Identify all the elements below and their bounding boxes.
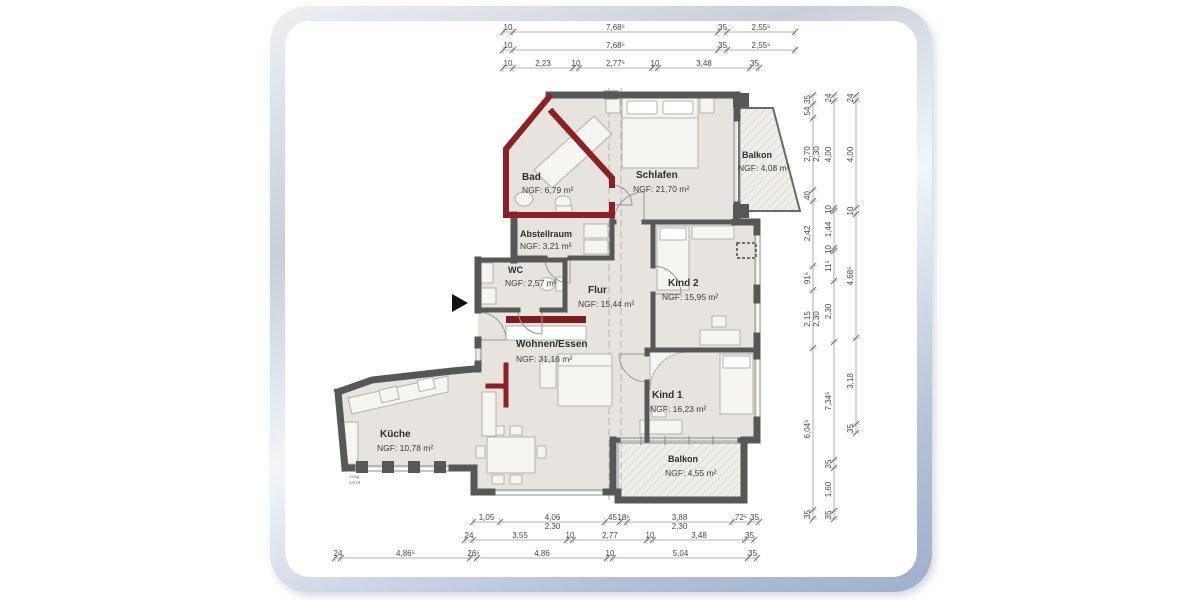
svg-text:2,15: 2,15 [803, 311, 812, 327]
svg-text:2,30: 2,30 [672, 522, 688, 531]
svg-text:WC: WC [508, 265, 523, 275]
svg-text:NGF: 4,08 m²: NGF: 4,08 m² [738, 163, 790, 173]
svg-text:11⁵: 11⁵ [824, 260, 833, 272]
svg-text:Kind 2: Kind 2 [668, 278, 699, 289]
svg-text:91⁵: 91⁵ [803, 272, 812, 284]
svg-text:4,06: 4,06 [545, 513, 561, 522]
svg-text:10: 10 [606, 549, 615, 558]
dim-chain-bottom-3: 244,86⁵26⁵4,86105,0435 [332, 549, 760, 562]
svg-text:2,77⁵: 2,77⁵ [606, 59, 625, 68]
svg-text:3,48: 3,48 [696, 59, 712, 68]
svg-text:4,86⁵: 4,86⁵ [396, 549, 415, 558]
svg-text:Bad: Bad [522, 172, 541, 183]
svg-text:10: 10 [572, 59, 581, 68]
svg-text:2,23: 2,23 [535, 59, 551, 68]
dim-chain-top-2: 107,68⁵352,55⁵ [500, 41, 798, 54]
svg-text:24: 24 [465, 531, 474, 540]
svg-text:35: 35 [824, 459, 833, 468]
svg-text:3,55: 3,55 [512, 531, 528, 540]
svg-text:35: 35 [803, 510, 812, 519]
svg-text:35: 35 [748, 549, 757, 558]
svg-text:10: 10 [504, 59, 513, 68]
svg-text:35: 35 [745, 531, 754, 540]
svg-text:2,30: 2,30 [812, 146, 821, 162]
svg-text:4,00: 4,00 [846, 146, 855, 162]
svg-text:10: 10 [566, 531, 575, 540]
svg-text:7,68⁵: 7,68⁵ [606, 41, 625, 50]
sideboard-red [506, 316, 586, 323]
svg-text:35: 35 [750, 513, 759, 522]
dim-chain-right-1: 35542,702,30402,4291⁵2,152,306,04⁵35 [803, 92, 821, 522]
svg-text:6,04⁵: 6,04⁵ [803, 420, 812, 439]
dim-chain-bottom-2: 243,55102,77103,4835 [462, 531, 757, 544]
dim-chain-right-2: 244,00101,441011⁵2,307,34⁵351,6035 [824, 92, 838, 522]
svg-text:7,34⁵: 7,34⁵ [824, 392, 833, 411]
svg-text:24: 24 [334, 549, 343, 558]
svg-text:Ausg.: Ausg. [349, 474, 361, 479]
svg-text:NGF: 2,57 m²: NGF: 2,57 m² [505, 278, 557, 288]
svg-text:Schlafen: Schlafen [636, 170, 678, 181]
floor-plan-canvas: Bad NGF: 6,79 m² Schlafen NGF: 21,70 m² … [0, 0, 1200, 600]
svg-text:10: 10 [824, 245, 833, 254]
svg-text:35: 35 [846, 424, 855, 433]
svg-text:NGF: 31,16 m²: NGF: 31,16 m² [516, 354, 572, 364]
svg-text:3,18: 3,18 [846, 373, 855, 389]
svg-text:24: 24 [824, 93, 833, 102]
svg-text:NGF: 21,70 m²: NGF: 21,70 m² [633, 184, 689, 194]
svg-text:35: 35 [750, 59, 759, 68]
svg-text:45: 45 [608, 513, 617, 522]
svg-text:10: 10 [504, 23, 513, 32]
svg-text:35: 35 [824, 510, 833, 519]
svg-text:NGF: 3,21 m²: NGF: 3,21 m² [520, 241, 572, 251]
svg-text:Wohnen/Essen: Wohnen/Essen [516, 339, 588, 350]
svg-text:2,55⁵: 2,55⁵ [752, 23, 771, 32]
svg-text:24: 24 [846, 93, 855, 102]
svg-text:10: 10 [646, 531, 655, 540]
svg-text:72⁵: 72⁵ [735, 513, 747, 522]
svg-text:10: 10 [651, 59, 660, 68]
svg-text:NGF: 10,78 m²: NGF: 10,78 m² [377, 443, 433, 453]
svg-text:2,55⁵: 2,55⁵ [752, 41, 771, 50]
svg-text:Balkon: Balkon [742, 150, 772, 160]
svg-text:Flur: Flur [588, 285, 607, 296]
svg-text:4,86: 4,86 [534, 549, 550, 558]
svg-text:35: 35 [718, 41, 727, 50]
svg-text:NGF: 16,23 m²: NGF: 16,23 m² [650, 404, 706, 414]
svg-text:2,70: 2,70 [803, 146, 812, 162]
svg-text:3,48: 3,48 [691, 531, 707, 540]
svg-text:4,00: 4,00 [824, 146, 833, 162]
svg-text:26⁵: 26⁵ [467, 549, 479, 558]
svg-text:Kind 1: Kind 1 [652, 390, 683, 401]
svg-text:Küche: Küche [380, 429, 411, 440]
svg-text:18⁵: 18⁵ [617, 513, 629, 522]
svg-text:40: 40 [803, 191, 812, 200]
dim-chain-bottom-1: 1,054,062,304518⁵3,882,3072⁵35 [470, 513, 762, 531]
svg-text:2,42: 2,42 [803, 225, 812, 241]
svg-text:5,04: 5,04 [673, 549, 689, 558]
svg-text:NGF: 4,55 m²: NGF: 4,55 m² [665, 468, 717, 478]
svg-text:NGF: 15,95 m²: NGF: 15,95 m² [662, 292, 718, 302]
entrance-arrow [452, 294, 468, 312]
svg-text:NGF: 15,44 m²: NGF: 15,44 m² [578, 299, 634, 309]
svg-text:2,30: 2,30 [824, 303, 833, 319]
dim-chain-top-3: 102,23102,77⁵103,4835 [500, 59, 762, 72]
svg-text:NGF: 6,79 m²: NGF: 6,79 m² [522, 185, 574, 195]
svg-text:2,77: 2,77 [602, 531, 618, 540]
svg-text:1,05: 1,05 [479, 513, 495, 522]
dim-chain-top-1: 107,68⁵352,55⁵ [500, 23, 798, 36]
dim-chain-right-3: 244,00104,68⁵3,1835 [846, 92, 860, 436]
svg-text:Abstellraum: Abstellraum [520, 229, 572, 239]
svg-text:Balkon: Balkon [668, 454, 698, 464]
svg-text:4,68⁵: 4,68⁵ [846, 267, 855, 286]
svg-text:24/19: 24/19 [349, 480, 361, 485]
svg-text:1,44: 1,44 [824, 221, 833, 237]
svg-text:35: 35 [803, 95, 812, 104]
svg-text:35: 35 [718, 23, 727, 32]
svg-text:3,88: 3,88 [672, 513, 688, 522]
svg-text:54: 54 [803, 106, 812, 115]
svg-text:1,60: 1,60 [824, 481, 833, 497]
svg-text:2,30: 2,30 [812, 311, 821, 327]
svg-text:10: 10 [504, 41, 513, 50]
svg-text:2,30: 2,30 [545, 522, 561, 531]
svg-text:7,68⁵: 7,68⁵ [606, 23, 625, 32]
svg-text:10: 10 [846, 206, 855, 215]
kitchen-note: Ausg. 24/19 [349, 474, 361, 485]
svg-text:10: 10 [824, 205, 833, 214]
